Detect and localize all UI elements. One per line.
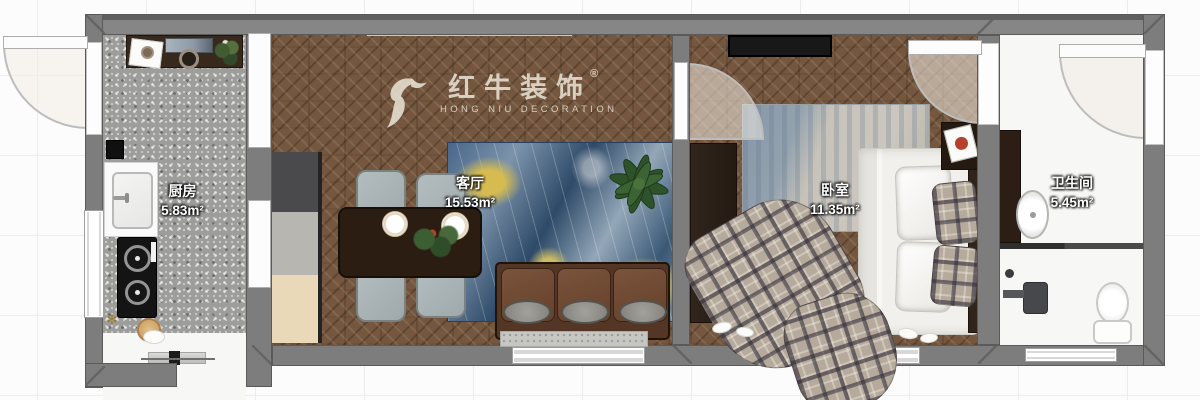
bull-logo-icon [380, 74, 432, 132]
cabinet-mid-section [272, 212, 318, 275]
wall-miter [672, 344, 692, 364]
bed-pillow-plaid [929, 244, 980, 308]
kitchen-name: 厨房 [140, 181, 225, 201]
bedroom-label: 卧室 11.35m² [790, 180, 880, 220]
sofa-pillow [561, 300, 609, 324]
brand-watermark: 红牛装饰® HONG NIU DECORATION [380, 74, 617, 132]
bedroom-door-panel [674, 62, 688, 140]
potted-plant [598, 140, 680, 226]
wall-miter [977, 15, 997, 35]
living-area: 15.53m² [425, 193, 515, 213]
glass-partition [1000, 243, 1143, 249]
living-window [512, 347, 645, 364]
kitchen-label: 厨房 5.83m² [140, 181, 225, 221]
entry-door-panel [3, 36, 88, 49]
sofa-pillow [503, 300, 551, 324]
wall-miter [1144, 345, 1164, 365]
bathroom-area: 5.45m² [1027, 193, 1117, 213]
bedroom-area: 11.35m² [790, 200, 880, 220]
bathroom-name: 卫生间 [1027, 173, 1117, 193]
brand-name: 红牛装饰® [448, 74, 609, 102]
floor-flower-deco: ✻ [104, 312, 120, 328]
brand-subtitle: HONG NIU DECORATION [440, 104, 617, 115]
gas-stove [117, 237, 157, 318]
pot [179, 49, 199, 69]
bathroom-door-panel [1059, 44, 1146, 58]
kitchen-counter [126, 35, 243, 68]
sofa-pillow [619, 300, 667, 324]
storage-cabinet [272, 152, 322, 343]
sofa [495, 262, 670, 340]
shower-arm [1003, 290, 1024, 298]
bedroom-bathroom-door-opening [978, 43, 999, 125]
stove-control [151, 242, 156, 262]
wall-miter [978, 344, 998, 364]
bedroom-bathroom-door-panel [908, 40, 982, 55]
registered-mark: ® [590, 68, 607, 80]
living-label: 客厅 15.53m² [425, 173, 515, 213]
tv [728, 35, 832, 57]
bedroom-name: 卧室 [790, 180, 880, 200]
shower-knob [1005, 269, 1014, 278]
table-centerpiece-plant [408, 224, 462, 262]
counter-plant [211, 37, 243, 67]
toilet-bowl [1096, 282, 1129, 324]
stove-burner [124, 245, 151, 272]
kitchen-window [84, 210, 104, 318]
entry-door-swing [3, 44, 88, 129]
wall-top [85, 14, 1165, 35]
sink-faucet-head [125, 193, 129, 203]
wall-miter [1144, 14, 1164, 34]
toilet-tank [1093, 320, 1132, 344]
drying-rack-rod [141, 358, 215, 360]
wall-miter [85, 366, 105, 386]
plate [382, 211, 408, 237]
shower-head [1023, 282, 1048, 314]
living-name: 客厅 [425, 173, 515, 193]
bathroom-window [1025, 348, 1117, 362]
floor-plan: ✻ [0, 0, 1200, 400]
bed-pillow-plaid [931, 180, 981, 246]
artwork-red-circle [954, 135, 970, 151]
cabinet-top-section [272, 152, 318, 212]
living-window-sill [500, 331, 648, 347]
kitchen-sliding-panel [248, 200, 271, 288]
intercom-box [106, 140, 124, 159]
bathroom-door-opening [1145, 50, 1164, 145]
wall-miter [252, 345, 272, 365]
bathroom-label: 卫生间 5.45m² [1027, 173, 1117, 213]
board-bowl [141, 46, 154, 59]
kitchen-area: 5.83m² [140, 201, 225, 221]
kitchen-sliding-panel [248, 33, 271, 148]
sink-drain [1030, 212, 1036, 218]
floor-mat [143, 330, 165, 344]
cabinet-bottom-section [272, 275, 318, 343]
stove-burner [125, 280, 150, 305]
entry-door-opening [86, 42, 102, 135]
wall-miter [85, 14, 105, 34]
